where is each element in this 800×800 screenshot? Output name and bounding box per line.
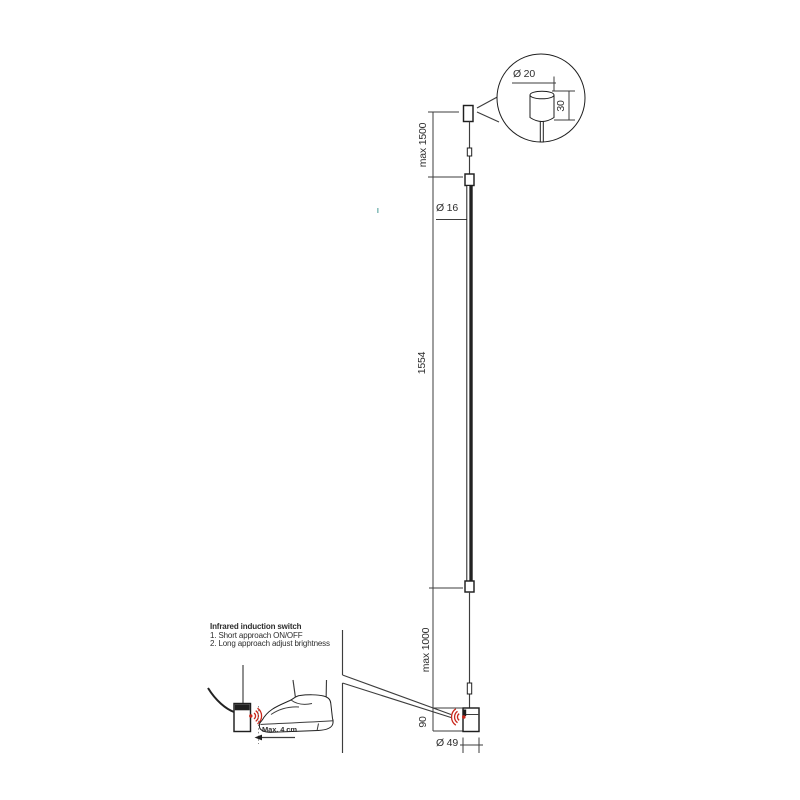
tube-connector-top xyxy=(465,174,474,186)
callout-diagonal-bottom xyxy=(343,683,452,718)
demo-head-cap xyxy=(235,704,250,710)
dim-label-head-diameter: Ø 49 xyxy=(436,737,458,749)
stray-mark xyxy=(377,208,379,213)
dim-label-canopy-height: 30 xyxy=(555,100,567,111)
dim-label-canopy-diameter: Ø 20 xyxy=(513,68,535,80)
linework xyxy=(0,0,800,800)
power-cord xyxy=(208,688,234,712)
sensor-window xyxy=(463,710,466,717)
sensor-dot xyxy=(462,715,466,719)
sensor-note-item-2: 2. Long approach adjust brightness xyxy=(210,640,330,649)
callout-line-bottom xyxy=(477,112,499,122)
dim-label-suspension-max: max 1500 xyxy=(417,123,429,168)
technical-drawing-canvas: max 1500 Ø 16 1554 max 1000 90 Ø 49 Ø 20… xyxy=(0,0,800,800)
sensor-note: Infrared induction switch 1. Short appro… xyxy=(210,623,330,649)
light-tube xyxy=(467,186,472,582)
distance-arrow xyxy=(255,735,296,741)
pendant-fixture xyxy=(433,106,479,732)
demo-lamp-head xyxy=(234,704,251,732)
cable-adjuster-top xyxy=(467,148,471,156)
canopy-cable xyxy=(540,122,543,143)
callout-diagonal-top xyxy=(343,675,452,715)
lamp-head xyxy=(462,708,479,732)
dim-label-cable-max: max 1000 xyxy=(420,628,432,673)
cable-adjuster-bottom xyxy=(467,683,471,694)
max-distance-label: Max. 4 cm xyxy=(262,725,297,734)
sensor-waves-icon xyxy=(452,709,460,725)
dim-label-tube-length: 1554 xyxy=(416,352,428,375)
dim-label-tube-diameter: Ø 16 xyxy=(436,202,458,214)
dim-label-head-height: 90 xyxy=(417,716,429,727)
ceiling-mount xyxy=(464,106,474,122)
tube-connector-bottom xyxy=(465,581,474,592)
